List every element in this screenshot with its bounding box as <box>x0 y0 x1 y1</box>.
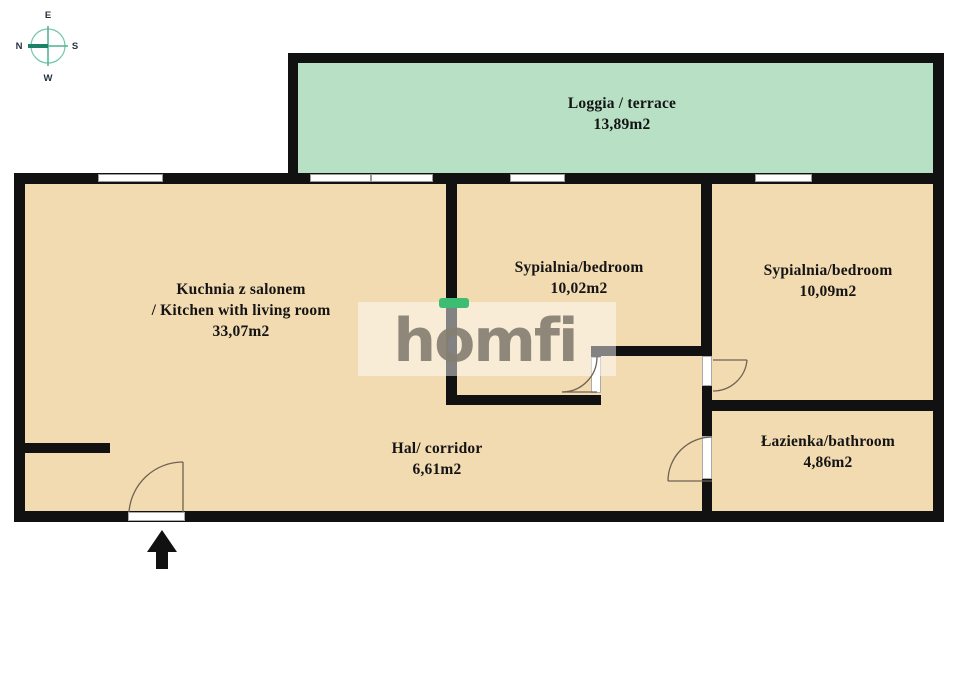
kitchen-name-pl: Kuchnia z salonem <box>111 279 371 300</box>
logo-green-macron-icon <box>439 298 469 308</box>
bedroom2-area: 10,09m2 <box>708 281 948 302</box>
corridor-area: 6,61m2 <box>327 459 547 480</box>
bathroom-name: Łazienka/bathroom <box>708 431 948 452</box>
logo-letter-h: h <box>393 305 434 377</box>
kitchen-area: 33,07m2 <box>111 321 371 342</box>
logo-letter-o-text: o <box>434 306 473 376</box>
compass-label-bottom: W <box>44 73 53 84</box>
exterior-wall-left <box>14 173 25 522</box>
compass-label-left: N <box>16 41 23 52</box>
kitchen-label: Kuchnia z salonem / Kitchen with living … <box>111 279 371 342</box>
logo-letters-mfi: mfi <box>473 305 576 377</box>
bedroom1-name: Sypialnia/bedroom <box>459 257 699 278</box>
compass-label-top: E <box>45 10 51 21</box>
wall-bedroom1-corridor-left <box>446 395 601 405</box>
loggia-name: Loggia / terrace <box>492 93 752 114</box>
loggia-area: 13,89m2 <box>492 114 752 135</box>
window-kitchen-left <box>98 174 163 182</box>
loggia-wall-top <box>288 53 944 63</box>
kitchen-name-en: / Kitchen with living room <box>111 300 371 321</box>
compass-label-right: S <box>72 41 78 52</box>
loggia-wall-left <box>288 53 298 184</box>
floor-plan: h o mfi E S W N Loggia / terrace <box>0 0 960 679</box>
wall-bathroom-top <box>702 400 933 411</box>
bathroom-label: Łazienka/bathroom 4,86m2 <box>708 431 948 473</box>
compass-rose: E S W N <box>10 0 90 90</box>
corridor-label: Hal/ corridor 6,61m2 <box>327 438 547 480</box>
window-bedroom2 <box>755 174 812 182</box>
homfi-logo: h o mfi <box>365 299 605 377</box>
bedroom2-label: Sypialnia/bedroom 10,09m2 <box>708 260 948 302</box>
wall-kitchen-stub <box>25 443 110 453</box>
entrance-arrow-icon <box>147 530 177 569</box>
door-opening-entrance <box>128 512 185 521</box>
door-opening-bedroom2 <box>702 356 712 386</box>
bathroom-area: 4,86m2 <box>708 452 948 473</box>
window-mullion <box>370 174 372 182</box>
corridor-name: Hal/ corridor <box>327 438 547 459</box>
logo-letter-o: o <box>434 305 473 377</box>
bedroom1-area: 10,02m2 <box>459 278 699 299</box>
bedroom2-name: Sypialnia/bedroom <box>708 260 948 281</box>
window-bedroom1 <box>510 174 565 182</box>
wall-bathroom-corridor-lower <box>702 478 712 511</box>
loggia-label: Loggia / terrace 13,89m2 <box>492 93 752 135</box>
bedroom1-label: Sypialnia/bedroom 10,02m2 <box>459 257 699 299</box>
